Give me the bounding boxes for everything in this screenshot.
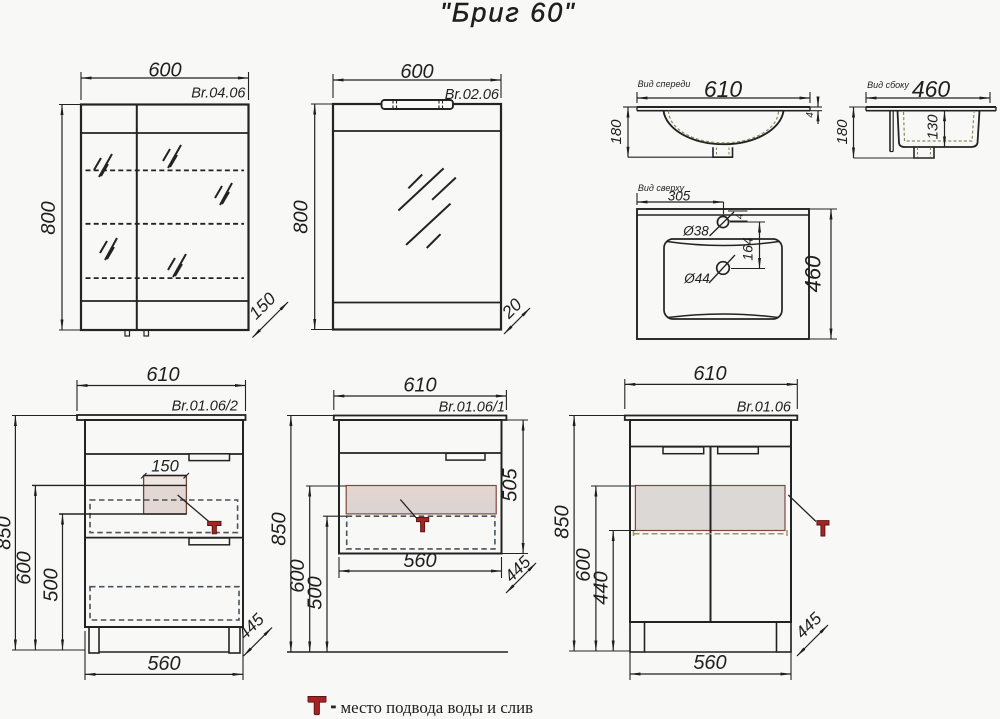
svg-text:850: 850	[552, 505, 574, 538]
svg-text:560: 560	[147, 653, 180, 675]
svg-text:305: 305	[668, 189, 691, 204]
svg-text:610: 610	[704, 76, 743, 102]
svg-text:Br.01.06/2: Br.01.06/2	[172, 399, 238, 415]
svg-text:180: 180	[608, 119, 625, 145]
svg-text:505: 505	[500, 467, 522, 501]
svg-text:600: 600	[400, 61, 433, 83]
svg-text:500: 500	[305, 576, 327, 609]
svg-text:560: 560	[403, 550, 436, 572]
svg-text:Br.01.06/1: Br.01.06/1	[439, 400, 505, 416]
svg-text:800: 800	[38, 201, 60, 234]
svg-text:150: 150	[151, 458, 179, 476]
svg-text:560: 560	[693, 652, 726, 674]
svg-text:Вид сбоку: Вид сбоку	[867, 80, 909, 90]
svg-text:4: 4	[735, 213, 746, 219]
svg-text:150: 150	[245, 288, 280, 323]
svg-text:440: 440	[591, 571, 613, 604]
svg-text:610: 610	[693, 363, 726, 385]
svg-text:445: 445	[792, 608, 826, 642]
svg-text:Ø44: Ø44	[683, 271, 710, 286]
svg-text:610: 610	[146, 364, 179, 386]
svg-text:"Бриг 60": "Бриг 60"	[440, 0, 576, 28]
svg-text:460: 460	[801, 255, 826, 292]
svg-text:610: 610	[403, 375, 436, 397]
svg-text:Br.04.06: Br.04.06	[191, 86, 246, 102]
svg-text:600: 600	[148, 60, 181, 82]
svg-text:800: 800	[291, 200, 313, 233]
svg-text:445: 445	[501, 552, 535, 586]
svg-text:850: 850	[0, 516, 16, 549]
svg-text:Вид спереди: Вид спереди	[638, 79, 691, 89]
svg-text:460: 460	[912, 76, 951, 102]
svg-text:Br.02.06: Br.02.06	[445, 87, 500, 103]
svg-text:850: 850	[269, 512, 291, 545]
svg-text:500: 500	[41, 568, 63, 601]
svg-text:180: 180	[834, 119, 851, 145]
svg-text:600: 600	[14, 551, 36, 584]
svg-text:Br.01.06: Br.01.06	[737, 400, 792, 416]
svg-text:Ø38: Ø38	[682, 224, 709, 239]
svg-text:4: 4	[805, 112, 816, 118]
svg-text:130: 130	[925, 114, 942, 140]
svg-text:место подвода воды и слив: место подвода воды и слив	[341, 698, 534, 717]
svg-text:164: 164	[740, 237, 756, 261]
